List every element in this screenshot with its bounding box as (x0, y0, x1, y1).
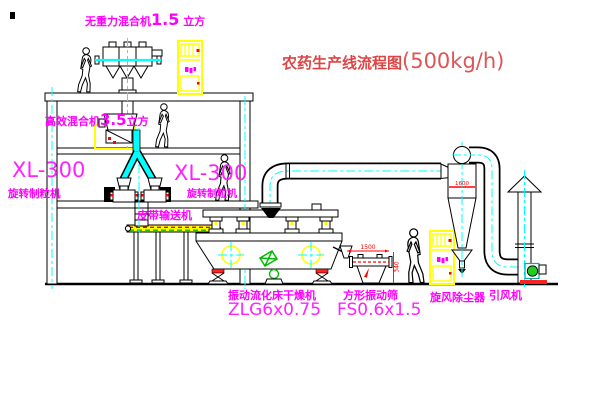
dim-height-label: 340 (394, 261, 401, 273)
bucket-elevator-1 (178, 41, 202, 94)
discharge-valve (265, 270, 283, 285)
label-cyclone: 旋风除尘器 (429, 290, 486, 304)
label-belt-conveyor: 皮带输送机 (136, 208, 192, 222)
label-sieve-model: FS0.6x1.5 (337, 300, 421, 320)
dim-length-label: 1500 (360, 244, 375, 251)
spring-mount-right (312, 269, 332, 284)
label-dryer-model: ZLG6x0.75 (228, 300, 321, 320)
diagram-title: 农药生产线流程图(500kg/h) (281, 49, 504, 73)
granulator-right-machine (141, 178, 171, 202)
square-vibrating-sieve: 1500 340 (333, 244, 401, 283)
cad-flow-diagram: 1600 (0, 0, 600, 403)
worker-figure-floor2 (156, 104, 170, 147)
label-fan: 引风机 (489, 288, 522, 302)
plot-mark (10, 12, 15, 19)
bucket-elevator-2 (430, 231, 454, 284)
label-granulator-left-model: XL-300 (12, 158, 85, 182)
worker-figure-ground (407, 229, 424, 283)
label-granulator-mid-name: 旋转制粒机 (186, 187, 237, 200)
label-top-mixer: 无重力混合机1.5 立方 (84, 10, 205, 29)
granulator-left-machine (104, 178, 138, 202)
label-granulator-mid-model: XL-300 (174, 161, 247, 185)
worker-figure-top (78, 48, 92, 92)
spring-mount-left (208, 269, 228, 284)
y-chute (123, 152, 153, 180)
label-granulator-left-name: 旋转制粒机 (7, 187, 61, 200)
drawing-canvas: 1600 (0, 0, 600, 403)
